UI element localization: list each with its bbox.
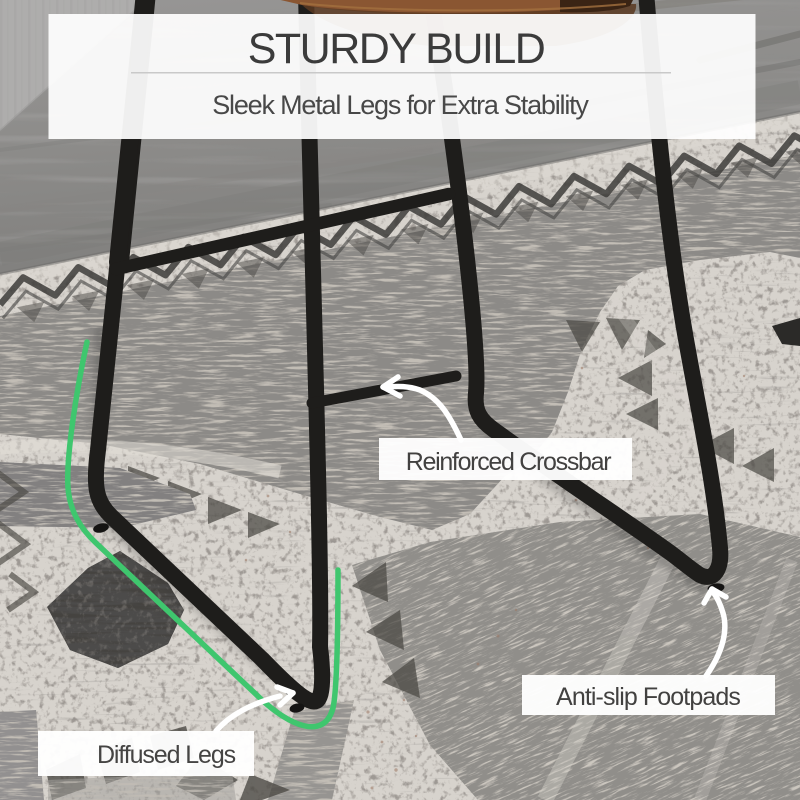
svg-text:Sleek Metal Legs for Extra Sta: Sleek Metal Legs for Extra Stability (212, 90, 589, 120)
svg-text:STURDY BUILD: STURDY BUILD (248, 25, 545, 73)
svg-text:Reinforced Crossbar: Reinforced Crossbar (406, 448, 612, 476)
svg-text:Diffused Legs: Diffused Legs (97, 741, 236, 769)
svg-text:Anti-slip Footpads: Anti-slip Footpads (556, 683, 740, 711)
